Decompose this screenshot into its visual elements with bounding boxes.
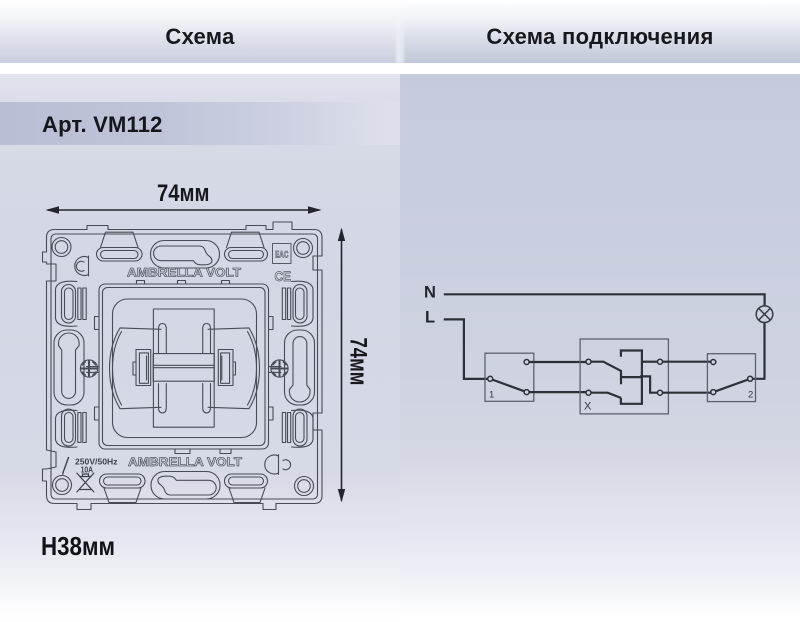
svg-text:X: X <box>584 401 592 413</box>
svg-text:L: L <box>425 309 435 327</box>
svg-text:74мм: 74мм <box>345 338 372 386</box>
svg-text:10A: 10A <box>81 464 94 474</box>
svg-text:EAC: EAC <box>275 250 289 261</box>
svg-text:AMBRELLA VOLT: AMBRELLA VOLT <box>128 455 243 469</box>
svg-text:CE: CE <box>275 269 292 284</box>
svg-text:AMBRELLA VOLT: AMBRELLA VOLT <box>127 266 242 280</box>
svg-text:1: 1 <box>489 390 494 401</box>
svg-text:N: N <box>424 284 436 302</box>
svg-text:H38мм: H38мм <box>41 531 115 561</box>
svg-text:74мм: 74мм <box>157 180 210 207</box>
svg-text:2: 2 <box>748 390 753 401</box>
